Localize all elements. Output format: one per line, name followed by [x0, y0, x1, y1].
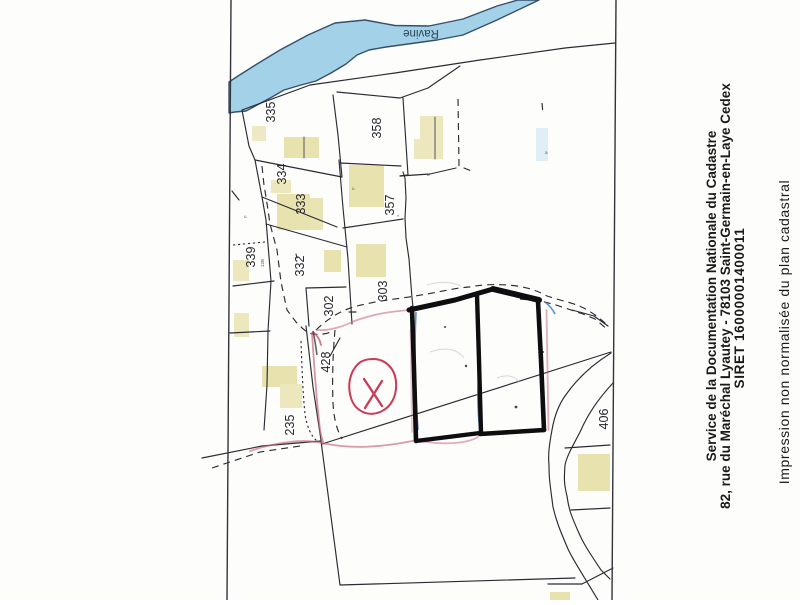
svg-text:12B: 12B	[260, 259, 265, 267]
svg-text:Impression non normalisée du p: Impression non normalisée du plan cadast…	[776, 180, 792, 484]
svg-text:SIRET 16000001400011: SIRET 16000001400011	[732, 228, 747, 389]
svg-text:357: 357	[383, 195, 397, 216]
svg-text:406: 406	[597, 409, 611, 430]
svg-text:335: 335	[264, 102, 278, 123]
svg-text:428: 428	[319, 352, 333, 373]
svg-text:82, rue du Maréchal Lyautey -: 82, rue du Maréchal Lyautey - 78103 Sain…	[718, 83, 733, 509]
svg-text:Ravine: Ravine	[403, 27, 439, 39]
svg-text:302: 302	[322, 296, 336, 317]
svg-text:Service de la Documentation Na: Service de la Documentation Nationale du…	[704, 130, 719, 461]
svg-text:334: 334	[275, 164, 289, 185]
svg-text:339: 339	[244, 247, 258, 268]
svg-text:333: 333	[294, 194, 308, 215]
svg-text:332: 332	[293, 256, 307, 277]
svg-text:303: 303	[376, 281, 390, 302]
svg-text:358: 358	[370, 118, 384, 139]
svg-text:235: 235	[283, 415, 297, 436]
